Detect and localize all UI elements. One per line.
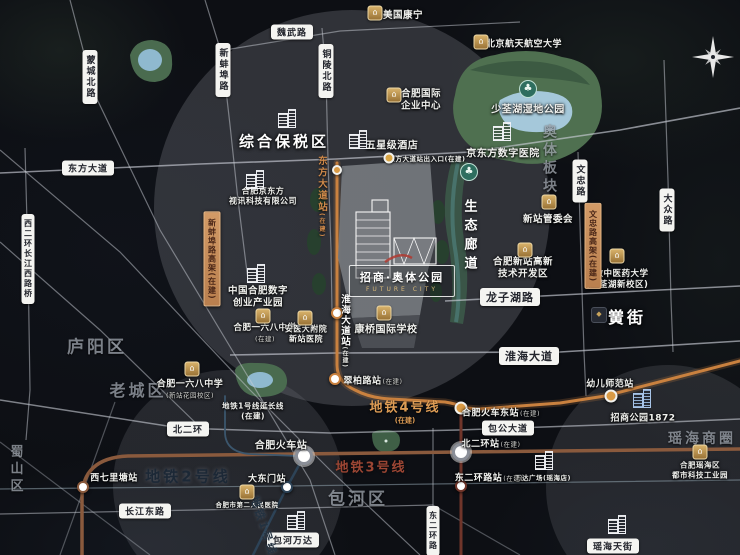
station-label-exit: 东方大道站出入口(在建) <box>389 153 466 163</box>
viaduct-label-xinbengbu: 新蚌埠路高架(在建) <box>204 211 221 306</box>
station-dongfangdadao <box>332 165 342 175</box>
poi-yaohai-gongyeyuan: 合肥瑶海区都市科技工业园 <box>672 460 728 480</box>
road-label-tonglingbeilu: 铜陵北路 <box>319 44 334 98</box>
poi-xinzhan-guanweihui: 新站管委会 <box>523 211 573 225</box>
bldg-icon <box>285 512 305 530</box>
station-cuibailu <box>329 373 341 385</box>
poi-meiguokangning: 美国康宁 <box>383 7 423 21</box>
station-label-dongerhuanlu: 东二环路站(在建) <box>455 471 524 484</box>
station-label-dadongmen: 大东门站 <box>248 472 286 485</box>
metro2-line-label: 地铁2号线 <box>145 466 230 487</box>
poi-yaohai-tianjie: 瑶海天街 <box>587 539 639 554</box>
station-label-hefeihuochezhan: 合肥火车站 <box>255 437 308 452</box>
station-label-dongfangdadao: 东方大道站(在建) <box>314 156 328 239</box>
gold-icon: ⌂ <box>377 306 392 321</box>
metro4-line-label: 地铁4号线(在建) <box>369 397 440 426</box>
poi-boe-shixun: 合肥京东方视讯科技有限公司 <box>229 187 297 208</box>
station-xiqilitang <box>77 481 89 493</box>
zone-label-baoshuiqu: 综合保税区 <box>239 131 329 152</box>
metro1-ext-label: 地铁1号线延长线(在建) <box>222 401 284 421</box>
station-label-hefeihuochedongzhan: 合肥火车东站(在建) <box>462 406 540 419</box>
poi-wuxingjiudian: 五星级酒店 <box>366 137 419 152</box>
poi-zhaoshang-1872: 招商公园1872 <box>610 411 675 424</box>
tree-icon: ♣ <box>519 80 537 98</box>
poi-gaoxin-kaifaqu: 合肥新站高新技术开发区 <box>493 257 553 282</box>
gold-icon: ⌂ <box>368 6 383 21</box>
road-label-xierhuan: 西二环长江西路桥 <box>22 214 35 304</box>
road-label-beierhuan: 北二环 <box>167 422 209 437</box>
road-label-huaihaidadao: 淮海大道 <box>499 347 559 365</box>
district-baohequ: 包河区 <box>328 485 388 510</box>
district-shushanqu: 蜀山区 <box>6 445 25 496</box>
bldgblue-icon <box>631 390 651 408</box>
gold-icon: ⌂ <box>518 243 533 258</box>
bldg-icon <box>533 452 553 470</box>
station-label-cuibailu: 翠柏路站(在建) <box>343 374 402 387</box>
poi-anyida: 安医大附院新站医院 <box>285 325 328 346</box>
gold-icon: ⌂ <box>387 88 402 103</box>
zone-label-aotibankuai: 奥体板块 <box>539 124 559 196</box>
district-luyangqu: 庐阳区 <box>67 333 127 358</box>
gold-icon: ⌂ <box>185 362 200 377</box>
road-label-dongerhuanlu: 东二环路 <box>427 506 440 555</box>
road-label-mengchengbeilu: 蒙城北路 <box>83 50 98 104</box>
poi-hongjie: 黉街 <box>608 304 646 328</box>
poi-beijinghangtian: 北京航天航空大学 <box>486 37 562 50</box>
poi-shuzi-chanyeyuan: 中国合肥数字创业产业园 <box>228 286 288 311</box>
road-label-dongfangdadao: 东方大道 <box>62 161 114 176</box>
dark-icon: ◆ <box>591 307 607 323</box>
bldg-icon <box>245 265 265 283</box>
gold-icon: ⌂ <box>240 485 255 500</box>
gold-icon: ⌂ <box>298 311 313 326</box>
poi-168-xinzhan: 合肥一六八中学(新站花园校区) <box>157 377 224 400</box>
gold-icon: ⌂ <box>693 445 708 460</box>
metro3-line-label: 地铁3号线 <box>335 457 406 476</box>
project-title-box: 招商·奥体公园 FUTURE CITY <box>349 265 455 297</box>
poi-kangqiao-school: 康桥国际学校 <box>355 321 418 336</box>
station-label-beierhuan: 北二环站(在建) <box>461 437 520 450</box>
gold-icon: ⌂ <box>256 309 271 324</box>
location-map: 招商·奥体公园 FUTURE CITY 魏武路蒙城北路新蚌埠路铜陵北路东方大道西… <box>0 0 740 555</box>
viaduct-label-wenzhong: 文忠路高架(在建) <box>585 203 602 289</box>
road-label-wenzhonglu: 文忠路 <box>573 160 588 203</box>
station-youershifan <box>605 390 618 403</box>
road-label-dazhonglu: 大众路 <box>660 189 675 232</box>
bldg-icon <box>491 123 511 141</box>
poi-jingdongfang-hospital: 京东方数字医院 <box>466 145 540 160</box>
project-title: 招商·奥体公园 <box>360 269 444 285</box>
road-label-weiwulu: 魏武路 <box>271 25 313 40</box>
poi-shaoquanhu-park: 少荃湖湿地公园 <box>491 101 565 116</box>
bldg-icon <box>244 171 264 189</box>
gold-icon: ⌂ <box>610 249 625 264</box>
road-label-changjiangdonglu: 长江东路 <box>119 504 171 519</box>
gold-icon: ⌂ <box>474 35 489 50</box>
gold-icon: ⌂ <box>542 195 557 210</box>
project-subtitle: FUTURE CITY <box>360 286 444 293</box>
road-label-longzihulu: 龙子湖路 <box>480 288 540 306</box>
road-label-baogongdadao: 包公大道 <box>482 421 534 436</box>
bldg-icon <box>347 131 367 149</box>
zone-label-shengtailangdao: 生态廊道 <box>460 199 479 275</box>
golddot-icon <box>384 153 395 164</box>
poi-hefeiguoji: 合肥国际企业中心 <box>401 89 441 114</box>
bldg-icon <box>276 110 296 128</box>
tree-icon: ♣ <box>460 163 478 181</box>
station-label-huaihaidadao: 淮海大道站(在建) <box>337 294 351 368</box>
station-label-xiqilitang: 西七里塘站 <box>90 471 138 484</box>
station-label-youershifan: 幼儿师范站 <box>586 377 634 390</box>
bldg-icon <box>606 516 626 534</box>
road-label-xinbengbulu: 新蚌埠路 <box>216 43 231 97</box>
labels-layer: 招商·奥体公园 FUTURE CITY 魏武路蒙城北路新蚌埠路铜陵北路东方大道西… <box>0 0 740 555</box>
